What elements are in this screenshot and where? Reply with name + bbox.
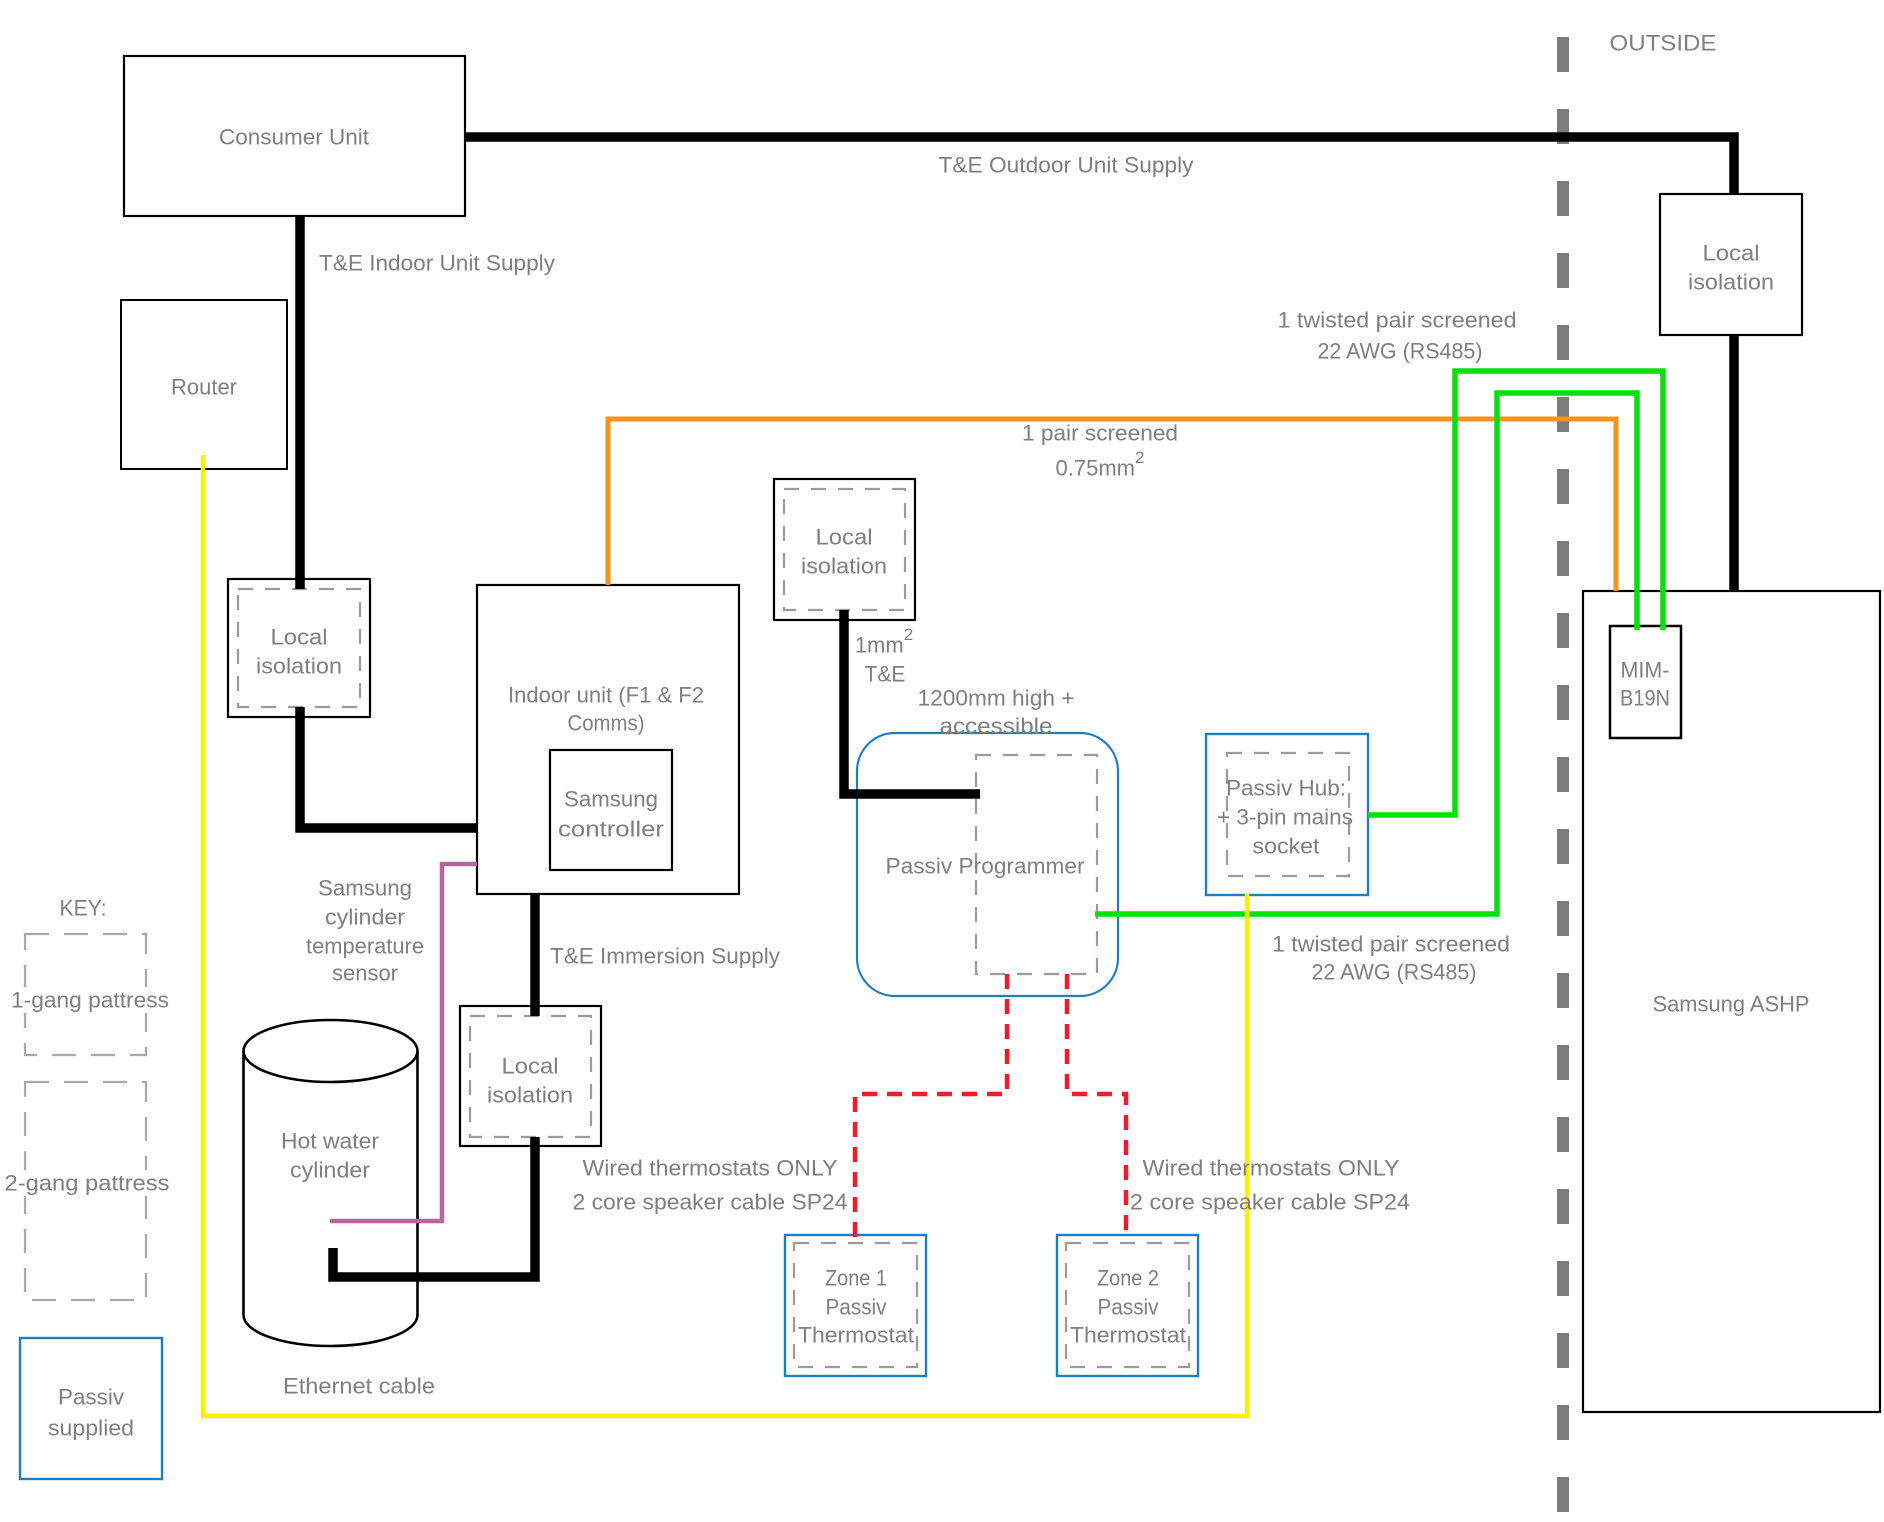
svg-text:Thermostat: Thermostat bbox=[798, 1323, 914, 1348]
svg-text:Zone 2: Zone 2 bbox=[1097, 1266, 1159, 1291]
svg-text:isolation: isolation bbox=[801, 554, 887, 579]
svg-text:+ 3-pin mains: + 3-pin mains bbox=[1217, 805, 1353, 830]
svg-text:1-gang pattress: 1-gang pattress bbox=[11, 988, 169, 1013]
svg-text:1 twisted pair screened: 1 twisted pair screened bbox=[1278, 308, 1517, 333]
svg-text:cylinder: cylinder bbox=[290, 1158, 370, 1183]
svg-text:Hot water: Hot water bbox=[281, 1129, 379, 1154]
svg-text:Router: Router bbox=[171, 375, 237, 400]
svg-text:Local: Local bbox=[271, 625, 328, 650]
svg-text:supplied: supplied bbox=[48, 1416, 134, 1441]
svg-text:22 AWG (RS485): 22 AWG (RS485) bbox=[1312, 960, 1477, 985]
svg-text:MIM-: MIM- bbox=[1621, 658, 1670, 683]
svg-text:Comms): Comms) bbox=[568, 711, 645, 736]
svg-text:Passiv Hub:: Passiv Hub: bbox=[1226, 776, 1346, 801]
svg-text:Local: Local bbox=[502, 1054, 559, 1079]
svg-text:T&E: T&E bbox=[865, 662, 906, 687]
svg-text:1 pair screened: 1 pair screened bbox=[1022, 421, 1178, 446]
svg-text:22 AWG (RS485): 22 AWG (RS485) bbox=[1318, 339, 1483, 364]
svg-text:KEY:: KEY: bbox=[60, 896, 107, 921]
svg-text:Samsung: Samsung bbox=[564, 787, 658, 812]
svg-text:2 core speaker cable SP24: 2 core speaker cable SP24 bbox=[573, 1190, 848, 1215]
svg-text:Wired thermostats ONLY: Wired thermostats ONLY bbox=[1143, 1156, 1400, 1181]
svg-text:temperature: temperature bbox=[306, 934, 424, 959]
svg-text:Passiv: Passiv bbox=[1098, 1295, 1159, 1320]
svg-text:Passiv: Passiv bbox=[58, 1385, 124, 1410]
svg-text:Passiv: Passiv bbox=[826, 1295, 887, 1320]
svg-text:Ethernet cable: Ethernet cable bbox=[283, 1374, 435, 1399]
svg-text:socket: socket bbox=[1253, 834, 1320, 859]
svg-text:controller: controller bbox=[558, 817, 664, 842]
svg-text:cylinder: cylinder bbox=[325, 905, 405, 930]
svg-text:Samsung: Samsung bbox=[318, 876, 412, 901]
svg-text:Samsung ASHP: Samsung ASHP bbox=[1653, 992, 1810, 1017]
svg-text:T&E Outdoor Unit Supply: T&E Outdoor Unit Supply bbox=[939, 153, 1194, 178]
svg-text:Thermostat: Thermostat bbox=[1070, 1323, 1186, 1348]
svg-text:1200mm high +: 1200mm high + bbox=[918, 686, 1075, 711]
svg-text:2-gang pattress: 2-gang pattress bbox=[5, 1171, 170, 1196]
svg-text:Consumer Unit: Consumer Unit bbox=[219, 125, 369, 150]
svg-text:2 core speaker cable SP24: 2 core speaker cable SP24 bbox=[1130, 1190, 1410, 1215]
svg-text:accessible: accessible bbox=[940, 714, 1053, 739]
svg-text:sensor: sensor bbox=[332, 961, 398, 986]
svg-text:B19N: B19N bbox=[1620, 686, 1670, 711]
svg-text:Local: Local bbox=[816, 525, 873, 550]
svg-text:OUTSIDE: OUTSIDE bbox=[1610, 31, 1717, 56]
svg-text:Indoor unit (F1 & F2: Indoor unit (F1 & F2 bbox=[508, 683, 704, 708]
svg-text:isolation: isolation bbox=[256, 654, 342, 679]
svg-text:Local: Local bbox=[1703, 241, 1760, 266]
svg-text:Wired thermostats ONLY: Wired thermostats ONLY bbox=[583, 1156, 838, 1181]
svg-text:1 twisted pair screened: 1 twisted pair screened bbox=[1272, 932, 1510, 957]
svg-text:Zone 1: Zone 1 bbox=[825, 1266, 887, 1291]
svg-text:T&E Indoor Unit Supply: T&E Indoor Unit Supply bbox=[319, 251, 555, 276]
svg-text:isolation: isolation bbox=[487, 1083, 573, 1108]
svg-text:isolation: isolation bbox=[1688, 270, 1774, 295]
svg-text:T&E Immersion Supply: T&E Immersion Supply bbox=[550, 944, 780, 969]
svg-text:Passiv Programmer: Passiv Programmer bbox=[886, 854, 1085, 879]
